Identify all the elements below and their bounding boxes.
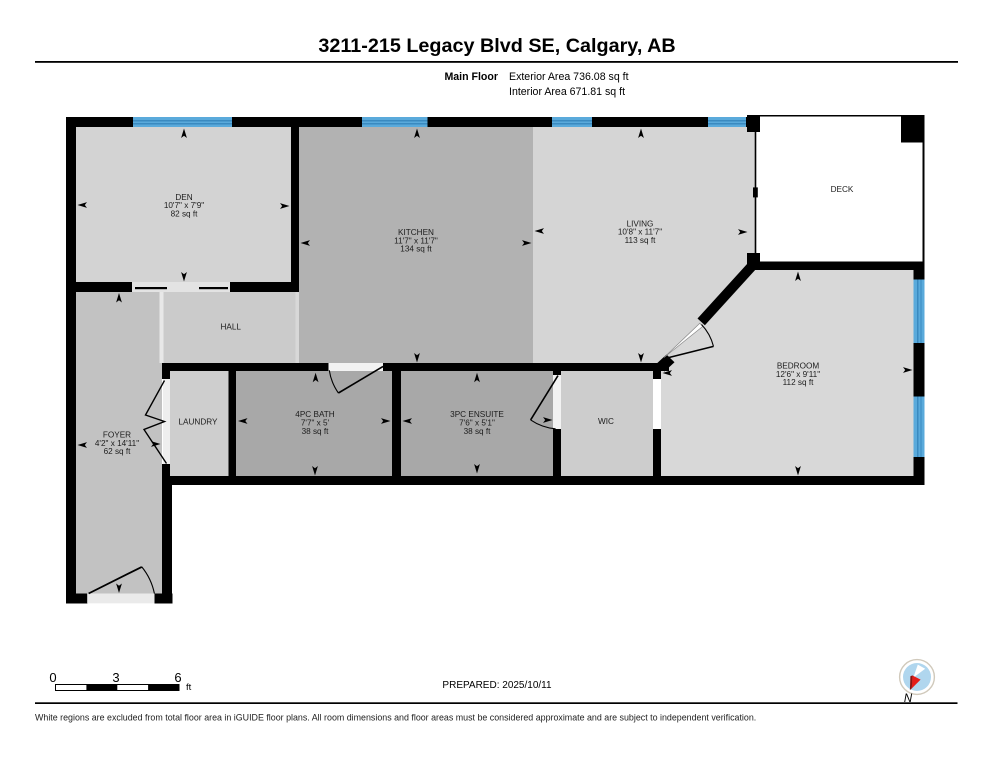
svg-text:N: N xyxy=(904,693,913,705)
svg-text:0: 0 xyxy=(49,670,56,685)
svg-text:HALL: HALL xyxy=(220,323,241,332)
svg-text:Exterior Area 736.08 sq ft: Exterior Area 736.08 sq ft xyxy=(509,71,629,83)
svg-text:134 sq ft: 134 sq ft xyxy=(400,245,432,254)
svg-text:6: 6 xyxy=(174,670,181,685)
svg-text:ft: ft xyxy=(186,682,192,693)
svg-text:38 sq ft: 38 sq ft xyxy=(302,427,330,436)
svg-text:Interior Area 671.81 sq ft: Interior Area 671.81 sq ft xyxy=(509,86,625,98)
svg-text:White regions are excluded fro: White regions are excluded from total fl… xyxy=(35,713,756,723)
svg-text:38 sq ft: 38 sq ft xyxy=(464,427,492,436)
svg-text:3: 3 xyxy=(112,670,119,685)
svg-text:82 sq ft: 82 sq ft xyxy=(171,209,199,218)
svg-text:112 sq ft: 112 sq ft xyxy=(783,378,815,387)
svg-text:PREPARED: 2025/10/11: PREPARED: 2025/10/11 xyxy=(442,680,552,691)
svg-text:LAUNDRY: LAUNDRY xyxy=(179,418,219,427)
svg-text:DECK: DECK xyxy=(831,185,854,194)
svg-text:WIC: WIC xyxy=(598,417,614,426)
svg-text:113 sq ft: 113 sq ft xyxy=(625,236,657,245)
svg-text:3211-215 Legacy Blvd SE, Calga: 3211-215 Legacy Blvd SE, Calgary, AB xyxy=(318,35,675,57)
svg-text:62 sq ft: 62 sq ft xyxy=(104,447,132,456)
svg-text:Main Floor: Main Floor xyxy=(444,71,498,83)
